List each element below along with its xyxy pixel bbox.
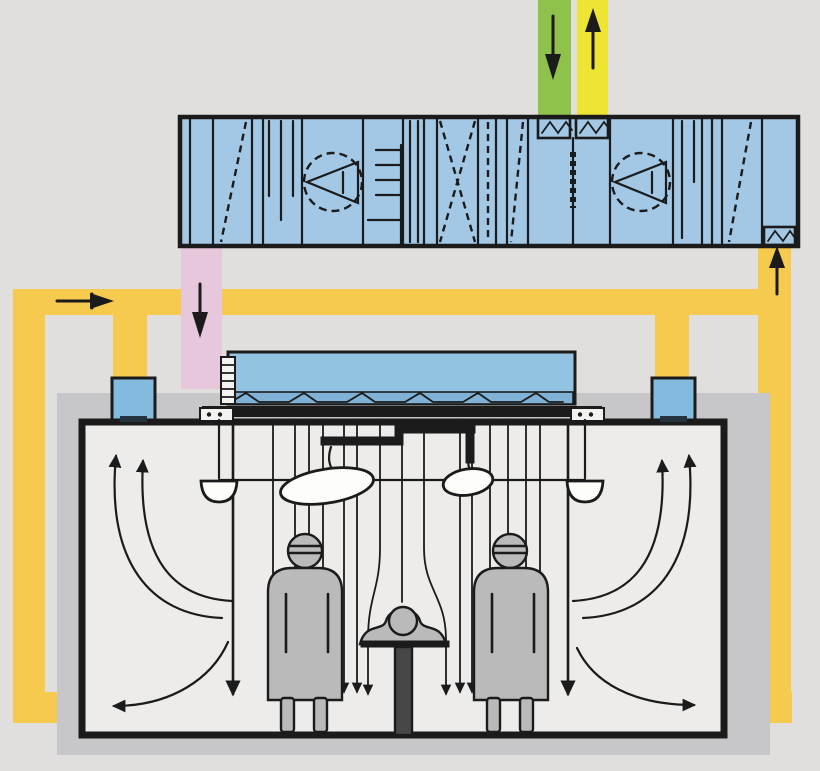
return-duct-left-riser xyxy=(13,289,45,723)
grille-slot-right xyxy=(660,416,687,422)
laminar-diffuser-face xyxy=(202,406,602,417)
ceiling-lamp-left xyxy=(201,481,237,502)
ceiling-lamp-right xyxy=(567,481,603,502)
return-duct-header xyxy=(13,289,791,315)
return-branch-right xyxy=(655,313,689,383)
grille-slot-left xyxy=(120,416,147,422)
ceiling-return-grille-right xyxy=(652,378,695,420)
or-ventilation-schematic xyxy=(0,0,820,771)
return-branch-left xyxy=(113,313,147,383)
diffuser-bracket-left xyxy=(200,408,233,421)
ceiling-return-grille-left xyxy=(112,378,155,420)
operating-table-pedestal xyxy=(395,647,412,735)
diffuser-bracket-right xyxy=(571,408,604,421)
patient-head xyxy=(389,607,417,635)
schematic-canvas xyxy=(0,0,820,771)
